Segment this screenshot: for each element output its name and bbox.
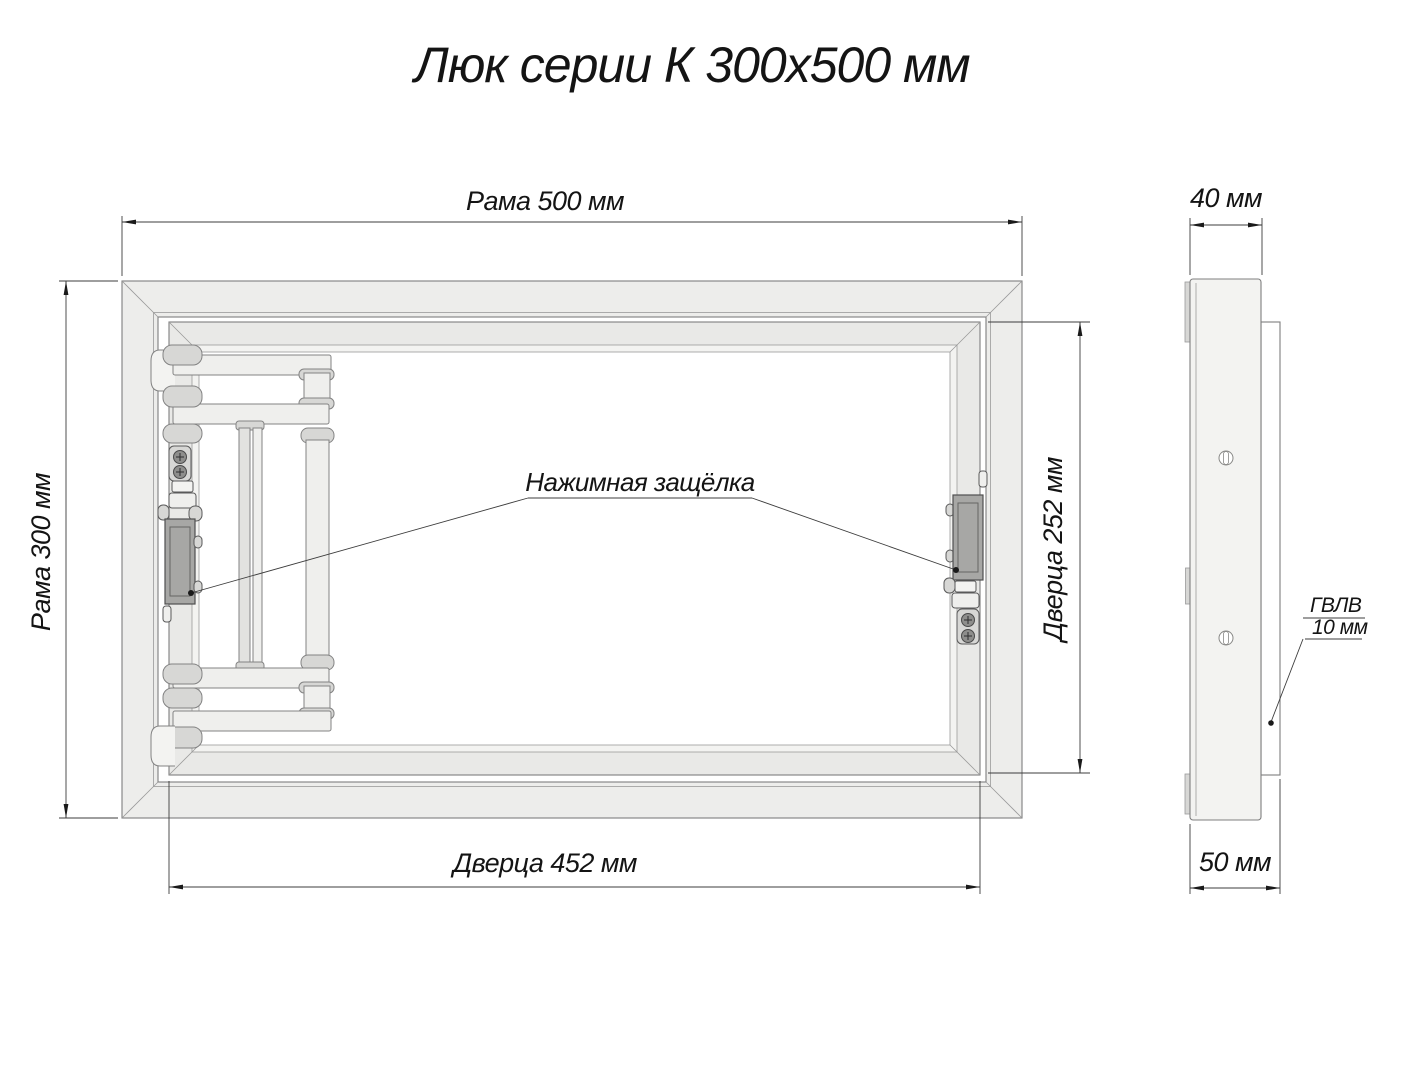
- hinge-knuckle: [163, 688, 202, 708]
- dim-label-door-height: Дверца 252 мм: [1038, 457, 1068, 644]
- technical-drawing: Люк серии К 300х500 мм: [0, 0, 1403, 1080]
- screw-icon: [174, 466, 187, 479]
- dim-label-total-depth: 50 мм: [1199, 847, 1271, 877]
- hinge-hook-bottom: [151, 726, 175, 766]
- side-view: [1185, 279, 1280, 820]
- mounting-hole-icon: [1219, 451, 1233, 465]
- hinge-knuckle: [163, 345, 202, 365]
- screw-icon: [174, 451, 187, 464]
- dimension-frame-width: Рама 500 мм: [122, 186, 1022, 276]
- dimension-frame-depth: 40 мм: [1190, 183, 1262, 275]
- hinge-knuckle: [163, 386, 202, 407]
- latch-callout-label: Нажимная защёлка: [525, 467, 755, 497]
- dim-label-frame-depth: 40 мм: [1190, 183, 1262, 213]
- gvl-material-label: ГВЛВ: [1310, 594, 1362, 617]
- dim-label-frame-height: Рама 300 мм: [26, 473, 56, 631]
- door-panel: [169, 322, 980, 775]
- hinge-knuckle: [163, 664, 202, 684]
- gvl-callout: ГВЛВ 10 мм: [1268, 594, 1367, 726]
- front-view: [122, 281, 1022, 818]
- drawing-page: Люк серии К 300х500 мм: [0, 0, 1403, 1080]
- dim-label-frame-width: Рама 500 мм: [466, 186, 624, 216]
- gvl-thickness-label: 10 мм: [1312, 616, 1368, 639]
- mounting-hole-icon: [1219, 631, 1233, 645]
- drawing-title: Люк серии К 300х500 мм: [411, 37, 970, 93]
- screw-icon: [962, 630, 975, 643]
- screw-icon: [962, 614, 975, 627]
- dimension-frame-height: Рама 300 мм: [26, 281, 118, 818]
- dim-label-door-width: Дверца 452 мм: [450, 848, 637, 878]
- side-frame-profile: [1190, 279, 1261, 820]
- hinge-knuckle: [163, 424, 202, 443]
